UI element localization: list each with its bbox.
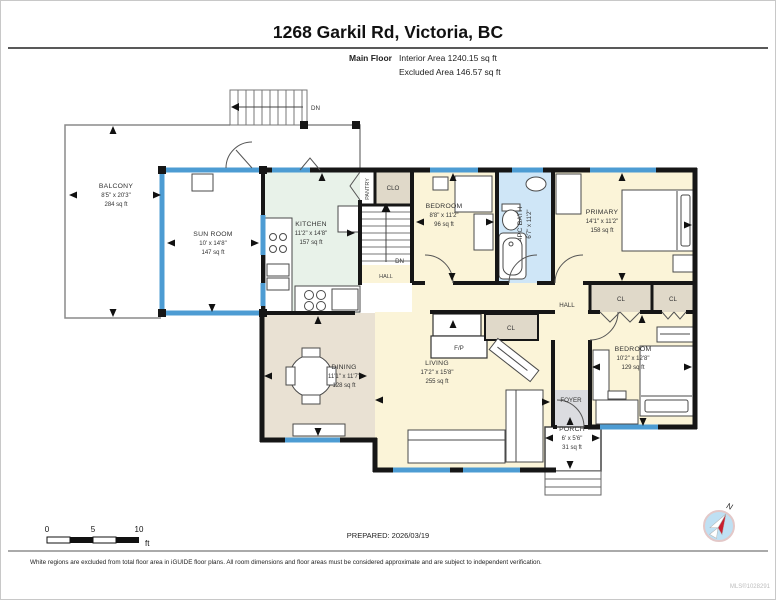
kitchen-area: 157 sq ft [299,240,322,246]
excluded-area: Excluded Area 146.57 sq ft [399,67,501,77]
cl1-label: CL [617,296,625,303]
sunroom-table [192,174,213,191]
bedroom1-dims: 8'8" x 11'2" [429,213,458,219]
balcony-area: 284 sq ft [104,202,127,208]
dining-table [290,355,332,397]
floor-plan-canvas: 1268 Garkil Rd, Victoria, BC Main Floor … [0,0,776,600]
kitchen-name: KITCHEN [295,221,327,228]
kitchen-counter-right [338,206,360,232]
bedroom2-pillow [645,400,688,412]
hall-small-label: HALL [379,274,393,280]
bedroom1-name: BEDROOM [426,203,463,210]
prepared-date: PREPARED: 2026/03/19 [347,531,429,540]
sunroom-name: SUN ROOM [193,231,232,238]
primary-area: 158 sq ft [590,228,613,234]
bedroom1-area: 96 sq ft [434,222,454,228]
floor-label: Main Floor [349,53,393,63]
sunroom-area: 147 sq ft [201,250,224,256]
scale-0: 0 [45,525,50,534]
balcony-dims: 8'5" x 20'3" [101,193,131,199]
pantry-label: PANTRY [365,178,371,200]
bedroom1-desk [474,214,493,250]
cl2-label: CL [669,296,677,303]
clo-label: CLO [387,185,400,192]
bedroom2-dresser [593,350,609,400]
floor-plan-page: 1268 Garkil Rd, Victoria, BC Main Floor … [0,0,776,600]
primary-name: PRIMARY [586,209,619,216]
bedroom2-area: 129 sq ft [621,365,644,371]
disclaimer-text: White regions are excluded from total fl… [30,559,542,566]
exterior-stairs: DN [230,90,320,125]
living-area: 255 sq ft [425,379,448,385]
dining-chair-w [286,367,295,385]
kitchen-dims: 11'2" x 14'8" [295,231,327,237]
interior-area: Interior Area 1240.15 sq ft [399,53,497,63]
mls-number: MLS®1028291 [730,583,771,590]
ext-stairs-dn-label: DN [311,105,320,112]
bedroom2-name: BEDROOM [615,346,652,353]
dining-dims: 11'1" x 11'7" [328,374,360,380]
primary-pillow [681,195,690,246]
sunroom-dims: 10' x 14'8" [199,241,226,247]
primary-nightstand [673,255,693,272]
porch-area: 31 sq ft [562,445,582,451]
fp-label: F/P [454,345,464,352]
scale-5: 5 [91,525,96,534]
bath-name: 4PC BATH [517,207,524,242]
living-dims: 17'2" x 15'8" [421,370,454,376]
primary-dims: 14'1" x 11'2" [586,219,618,225]
balcony-name: BALCONY [99,183,133,190]
bedroom2-chair [608,391,626,399]
dining-area: 128 sq ft [332,383,355,389]
bedroom1-table [433,177,448,190]
bath-dims: 6'7" x 11'2" [527,209,533,238]
page-title: 1268 Garkil Rd, Victoria, BC [273,22,504,42]
kitchen-sink-bowl2 [267,278,289,290]
int-stairs-dn-label: DN [395,258,404,265]
hall-label: HALL [559,302,575,309]
scale-unit: ft [145,539,150,548]
foyer-label: FOYER [560,397,582,404]
scale-10: 10 [135,525,144,534]
primary-desk [556,174,581,214]
dining-name: DINING [331,364,356,371]
porch-dims: 6' x 5'6" [562,436,583,442]
bedroom2-dims: 10'2" x 12'8" [617,356,650,362]
hearth [433,314,481,336]
cl3-label: CL [507,325,515,332]
hall-vert-fill [553,312,590,390]
living-sofa [408,430,505,463]
dining-chair-n [302,348,320,357]
living-chaise [506,390,543,462]
dining-chair-s [302,395,320,404]
porch-steps [545,471,601,495]
kitchen-sink-bowl1 [267,264,289,276]
living-name: LIVING [425,360,449,367]
bedroom2-desk [596,400,638,424]
kitchen-oven [332,289,358,310]
bath-sink [526,177,546,191]
porch-name: PORCH [559,426,585,433]
